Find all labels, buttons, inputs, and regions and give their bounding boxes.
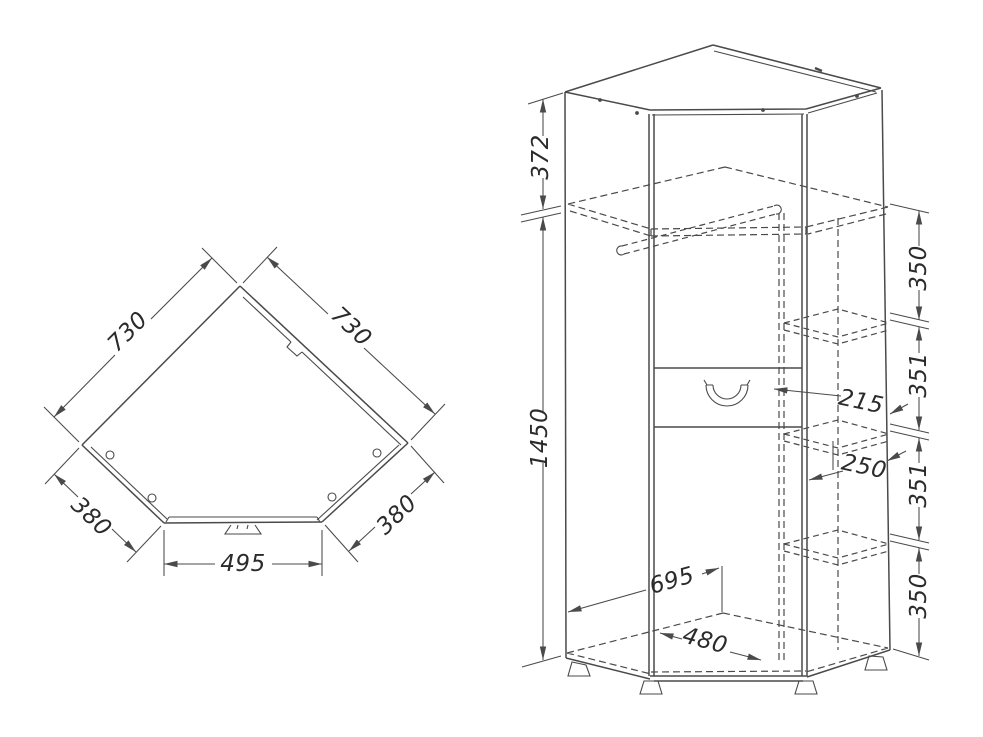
dim-label-380-left: 380 [66, 492, 117, 542]
dim-label-730-right: 730 [326, 302, 377, 352]
top-panel-thickness [652, 51, 877, 115]
side-shelf [784, 530, 889, 565]
front-view: 372 1450 350 351 351 350 215 [521, 45, 932, 694]
screw-mark [761, 108, 765, 112]
dim-label-351-lower: 351 [906, 462, 932, 507]
dim-1450: 1450 [522, 217, 561, 667]
hole [373, 449, 381, 457]
interior-shelf-dashed [568, 167, 888, 255]
hole [106, 451, 114, 459]
dim-730-left: 730 [44, 248, 237, 442]
dim-label-351-upper: 351 [906, 352, 932, 397]
plan-left-return-inner [91, 447, 167, 519]
hole [148, 494, 156, 502]
screw-mark [855, 94, 859, 98]
dim-label-495: 495 [220, 551, 265, 577]
front-bottom-edge [650, 676, 807, 681]
technical-drawing-canvas: 730 730 380 380 495 [0, 0, 983, 737]
plan-hinge-notch [287, 342, 302, 356]
right-outer-edge [882, 90, 890, 650]
screw-mark [598, 98, 602, 102]
assembly-holes [106, 449, 381, 502]
foot [568, 662, 590, 676]
dim-label-372: 372 [528, 134, 554, 179]
dim-250: 250 [809, 441, 906, 484]
dim-label-350-bottom: 350 [906, 573, 932, 618]
dim-730-right: 730 [243, 247, 445, 440]
technical-drawing-page: 730 730 380 380 495 [0, 0, 983, 737]
top-view: 730 730 380 380 495 [44, 247, 445, 577]
plan-right-side-inner [243, 297, 401, 445]
dim-chain-right: 350 351 351 350 [890, 204, 932, 660]
right-bottom-edge [807, 650, 890, 677]
dim-695: 695 [568, 562, 722, 612]
foot [640, 681, 662, 694]
shelf-outline [568, 167, 888, 229]
dim-label-1450: 1450 [527, 408, 553, 469]
edge-mark [815, 68, 822, 71]
dim-label-250: 250 [839, 450, 889, 485]
dim-label-380-right: 380 [372, 490, 423, 540]
dim-label-215: 215 [836, 385, 886, 420]
plan-front-panel-top [166, 517, 320, 522]
dim-215: 215 [774, 385, 908, 420]
foot [865, 656, 887, 670]
front-foot [225, 525, 261, 534]
dim-372: 372 [521, 93, 563, 222]
side-shelf [784, 420, 889, 455]
dim-label-350-top: 350 [906, 245, 932, 290]
plan-front-edge [164, 522, 322, 523]
hanging-rod [617, 205, 781, 255]
partition-edges [779, 213, 784, 660]
partition-dashed [779, 213, 838, 660]
right-front-corner [802, 114, 807, 676]
screw-mark [635, 111, 639, 115]
dim-480: 480 [660, 623, 761, 660]
top-panel-outline [565, 45, 881, 110]
dim-380-right: 380 [325, 446, 444, 562]
left-outer-edge [565, 92, 566, 658]
side-shelves-dashed [784, 309, 889, 565]
foot [795, 681, 817, 694]
cabinet-top [565, 45, 881, 115]
dim-label-730-left: 730 [103, 307, 153, 357]
hole [328, 493, 336, 501]
dim-label-480: 480 [680, 623, 731, 660]
plan-left-side-edge [82, 286, 240, 445]
drawer [654, 368, 802, 427]
side-shelf [784, 309, 889, 344]
drawer-handle [704, 380, 750, 406]
dim-495: 495 [164, 530, 322, 577]
